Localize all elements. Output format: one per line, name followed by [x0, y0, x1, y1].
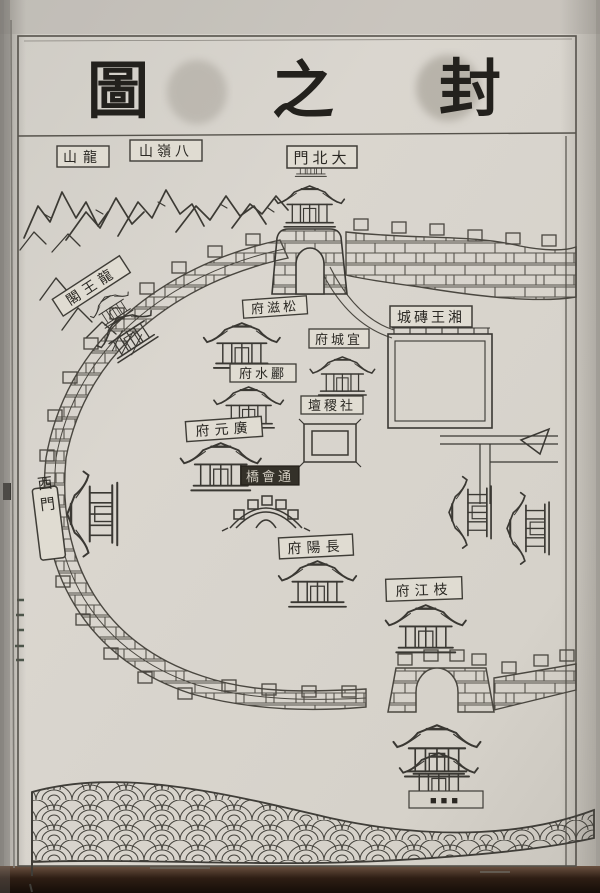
- title-char-tu: 圖: [87, 58, 149, 126]
- illegible-label: ■■■: [430, 795, 462, 807]
- title-char-zhi: 之: [272, 57, 334, 126]
- svg-text:府陽長: 府陽長: [287, 539, 345, 558]
- label-balingshan: 山嶺八: [130, 140, 202, 161]
- scanned-map-page: 圖 之 封: [0, 0, 600, 893]
- vignette-left: [0, 0, 10, 893]
- svg-text:山嶺八: 山嶺八: [139, 144, 193, 160]
- photo-bottom-edge: [0, 866, 600, 893]
- svg-text:府江枝: 府江枝: [395, 582, 453, 600]
- svg-text:府城宜: 府城宜: [315, 332, 363, 347]
- label-da-bei-men: 門北大: [287, 146, 357, 168]
- svg-text:山龍: 山龍: [63, 149, 103, 166]
- title-char-feng: 封: [439, 56, 501, 124]
- paper-page: [4, 0, 596, 874]
- bleed-through-mark: [167, 60, 227, 124]
- vignette-top: [0, 0, 600, 34]
- north-gate-arch: [296, 248, 324, 294]
- svg-text:橋會通: 橋會通: [246, 469, 294, 484]
- svg-text:門北大: 門北大: [293, 150, 350, 167]
- svg-text:府水酈: 府水酈: [239, 366, 287, 381]
- svg-text:壇稷社: 壇稷社: [308, 398, 356, 413]
- label-longshan: 山龍: [57, 146, 109, 167]
- svg-text:城磚王湘: 城磚王湘: [397, 310, 465, 326]
